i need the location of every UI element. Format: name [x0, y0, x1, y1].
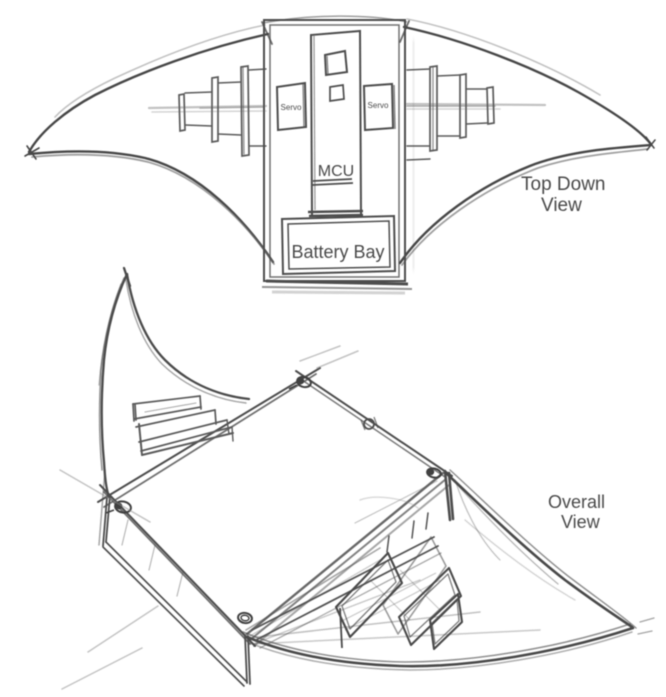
- svg-text:MCU: MCU: [318, 163, 354, 180]
- svg-text:Top Down: Top Down: [521, 174, 606, 195]
- svg-text:Battery Bay: Battery Bay: [291, 242, 384, 262]
- svg-text:Overall: Overall: [548, 492, 605, 512]
- svg-text:Servo: Servo: [368, 101, 389, 110]
- svg-text:View: View: [561, 512, 601, 532]
- svg-text:View: View: [541, 195, 582, 216]
- svg-text:Servo: Servo: [281, 103, 302, 112]
